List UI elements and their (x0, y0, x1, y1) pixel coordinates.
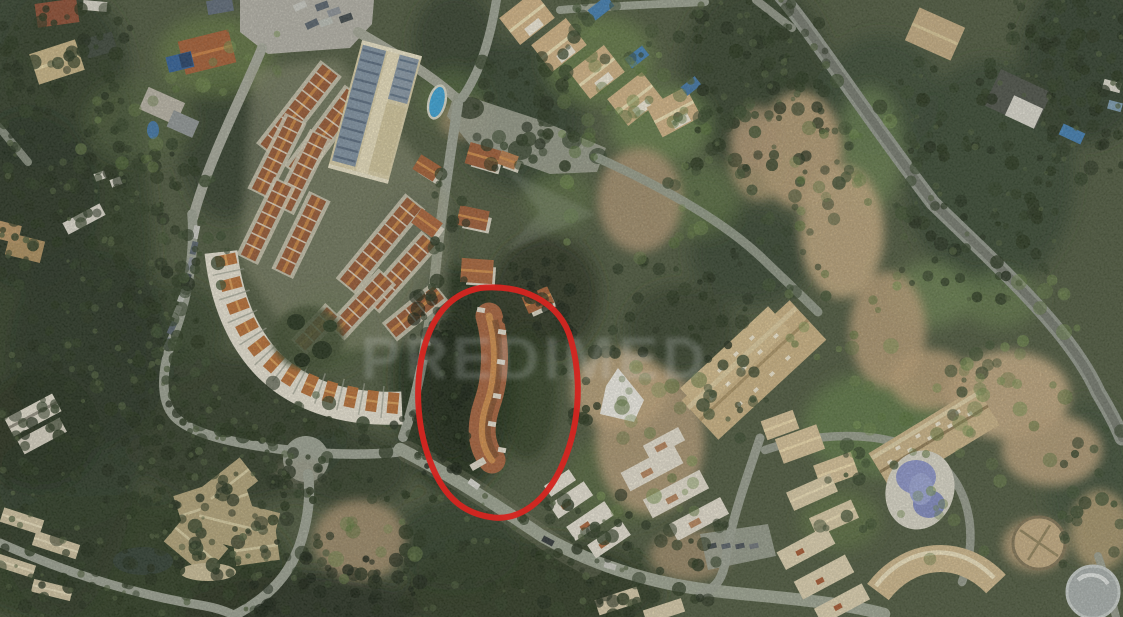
svg-text:PREDIMED: PREDIMED (361, 325, 710, 392)
